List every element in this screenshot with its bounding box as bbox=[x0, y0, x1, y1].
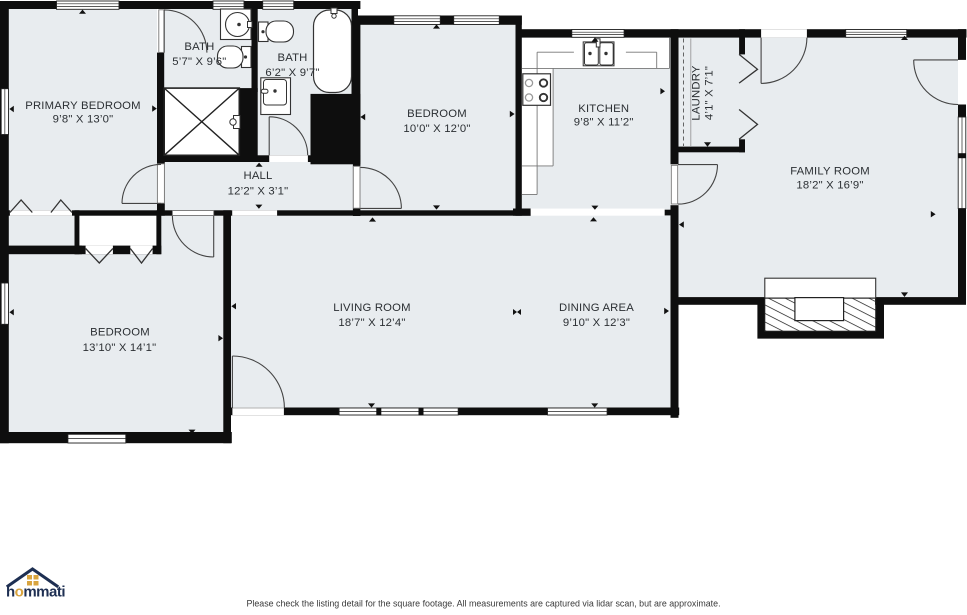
svg-text:BATH: BATH bbox=[277, 52, 307, 64]
svg-text:BEDROOM: BEDROOM bbox=[90, 327, 150, 339]
svg-text:9’8" X 13’0": 9’8" X 13’0" bbox=[53, 114, 114, 126]
svg-text:13’10" X 14’1": 13’10" X 14’1" bbox=[83, 342, 157, 354]
svg-text:4’1" X 7’1": 4’1" X 7’1" bbox=[704, 66, 716, 120]
svg-text:DINING AREA: DINING AREA bbox=[559, 302, 634, 314]
svg-text:LAUNDRY: LAUNDRY bbox=[691, 65, 703, 120]
svg-text:KITCHEN: KITCHEN bbox=[578, 103, 629, 115]
svg-text:9’8" X 11’2": 9’8" X 11’2" bbox=[574, 117, 634, 129]
svg-text:18’7" X 12’4": 18’7" X 12’4" bbox=[338, 317, 405, 329]
svg-text:LIVING ROOM: LIVING ROOM bbox=[333, 302, 411, 314]
svg-text:Please check the listing detai: Please check the listing detail for the … bbox=[246, 599, 720, 609]
svg-text:12’2" X 3’1": 12’2" X 3’1" bbox=[228, 186, 289, 198]
svg-text:5’7" X 9’6": 5’7" X 9’6" bbox=[172, 56, 226, 68]
svg-text:9’10" X 12’3": 9’10" X 12’3" bbox=[563, 317, 630, 329]
svg-text:PRIMARY BEDROOM: PRIMARY BEDROOM bbox=[25, 100, 141, 112]
svg-text:HALL: HALL bbox=[243, 170, 272, 182]
svg-text:BEDROOM: BEDROOM bbox=[407, 108, 467, 120]
svg-text:BATH: BATH bbox=[184, 41, 214, 53]
svg-text:hommati: hommati bbox=[6, 584, 65, 601]
svg-text:10’0" X 12’0": 10’0" X 12’0" bbox=[403, 123, 470, 135]
svg-text:6’2" X 9’7": 6’2" X 9’7" bbox=[265, 67, 319, 79]
svg-text:FAMILY ROOM: FAMILY ROOM bbox=[790, 166, 870, 178]
svg-text:18’2" X 16’9": 18’2" X 16’9" bbox=[796, 180, 863, 192]
